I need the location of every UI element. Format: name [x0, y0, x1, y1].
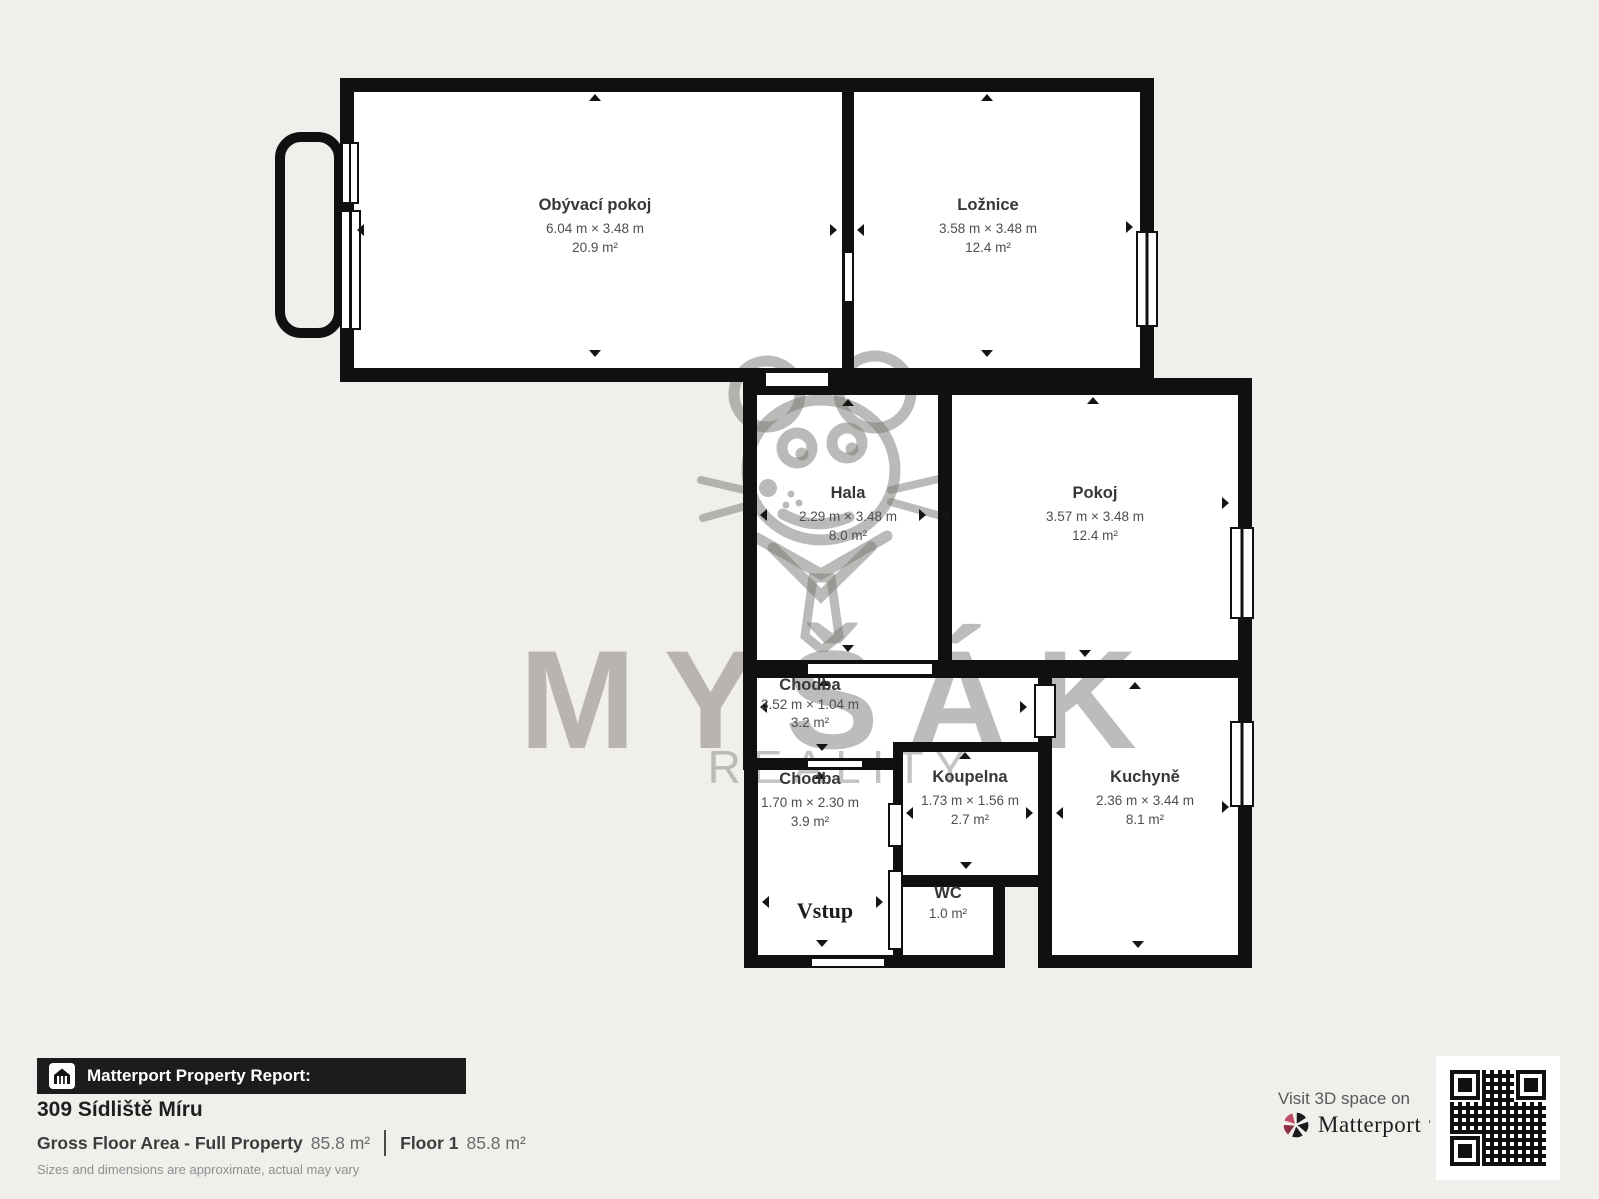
disclaimer-text: Sizes and dimensions are approximate, ac…	[37, 1162, 359, 1177]
room-name: Koupelna	[870, 768, 1070, 787]
wall	[340, 78, 1154, 92]
report-bar-label: Matterport Property Report:	[87, 1066, 311, 1086]
room-name: Pokoj	[995, 484, 1195, 503]
floor-label: Floor 1	[400, 1133, 458, 1154]
report-bar: Matterport Property Report:	[37, 1058, 466, 1094]
wall	[1140, 78, 1154, 382]
room-dims: 2.36 m × 3.44 m	[1045, 791, 1245, 810]
entry-door	[810, 957, 886, 968]
room-area: 12.4 m²	[888, 238, 1088, 257]
matterport-brand-link[interactable]: Matterport ’	[1281, 1110, 1431, 1140]
qr-pattern	[1450, 1070, 1546, 1166]
room-label-chodba-1: Chodba 3.52 m × 1.04 m 3.2 m²	[710, 676, 910, 732]
window	[1230, 527, 1254, 619]
qr-code	[1436, 1056, 1560, 1180]
room-area: 1.0 m²	[903, 904, 993, 923]
room-name: Ložnice	[888, 196, 1088, 215]
door-opening	[806, 662, 934, 676]
door-opening	[845, 253, 852, 301]
room-label-pokoj: Pokoj 3.57 m × 3.48 m 12.4 m²	[995, 484, 1195, 545]
room-area: 20.9 m²	[495, 238, 695, 257]
room-dims: 3.52 m × 1.04 m	[710, 696, 910, 714]
room-label-wc: WC 1.0 m²	[903, 884, 993, 923]
window	[1136, 231, 1158, 327]
door-opening	[1034, 684, 1056, 738]
matterport-wordmark: Matterport	[1318, 1112, 1421, 1138]
room-label-obyvaci-pokoj: Obývací pokoj 6.04 m × 3.48 m 20.9 m²	[495, 196, 695, 257]
room-area: 3.2 m²	[710, 714, 910, 732]
room-area: 12.4 m²	[995, 526, 1195, 545]
qr-finder-icon	[1516, 1070, 1546, 1100]
qr-finder-icon	[1450, 1136, 1480, 1166]
room-area: 2.7 m²	[870, 810, 1070, 829]
room-area: 8.0 m²	[748, 526, 948, 545]
room-label-loznice: Ložnice 3.58 m × 3.48 m 12.4 m²	[888, 196, 1088, 257]
visit-3d-text: Visit 3D space on	[1278, 1089, 1410, 1109]
window	[341, 142, 359, 204]
room-label-koupelna: Koupelna 1.73 m × 1.56 m 2.7 m²	[870, 768, 1070, 829]
wall	[893, 742, 1052, 752]
room-name: WC	[903, 884, 993, 903]
room-dims: 2.29 m × 3.48 m	[748, 507, 948, 526]
door-opening	[806, 759, 864, 769]
area-summary: Gross Floor Area - Full Property 85.8 m²…	[37, 1130, 526, 1156]
room-area: 8.1 m²	[1045, 810, 1245, 829]
room-dims: 3.57 m × 3.48 m	[995, 507, 1195, 526]
room-label-kuchyne: Kuchyně 2.36 m × 3.44 m 8.1 m²	[1045, 768, 1245, 829]
window	[340, 210, 361, 330]
wall	[1038, 955, 1252, 968]
room-label-hala: Hala 2.29 m × 3.48 m 8.0 m²	[748, 484, 948, 545]
gfa-value: 85.8 m²	[311, 1133, 370, 1154]
room-name: Obývací pokoj	[495, 196, 695, 215]
room-name: Hala	[748, 484, 948, 503]
room-dims: 6.04 m × 3.48 m	[495, 219, 695, 238]
property-address: 309 Sídliště Míru	[37, 1098, 203, 1122]
matterport-pinwheel-icon	[1281, 1110, 1311, 1140]
room-dims: 1.73 m × 1.56 m	[870, 791, 1070, 810]
door-opening	[764, 371, 830, 388]
room-dims: 3.58 m × 3.48 m	[888, 219, 1088, 238]
balcony-outline	[275, 132, 344, 338]
separator	[384, 1130, 386, 1156]
room-name: Chodba	[710, 676, 910, 695]
door-opening	[888, 870, 903, 950]
entrance-label: Vstup	[775, 898, 875, 924]
gfa-label: Gross Floor Area - Full Property	[37, 1133, 303, 1154]
trademark-icon: ’	[1428, 1119, 1430, 1131]
qr-finder-icon	[1450, 1070, 1480, 1100]
floor-value: 85.8 m²	[466, 1133, 525, 1154]
house-icon	[49, 1063, 75, 1089]
room-name: Kuchyně	[1045, 768, 1245, 787]
wall	[842, 78, 854, 370]
